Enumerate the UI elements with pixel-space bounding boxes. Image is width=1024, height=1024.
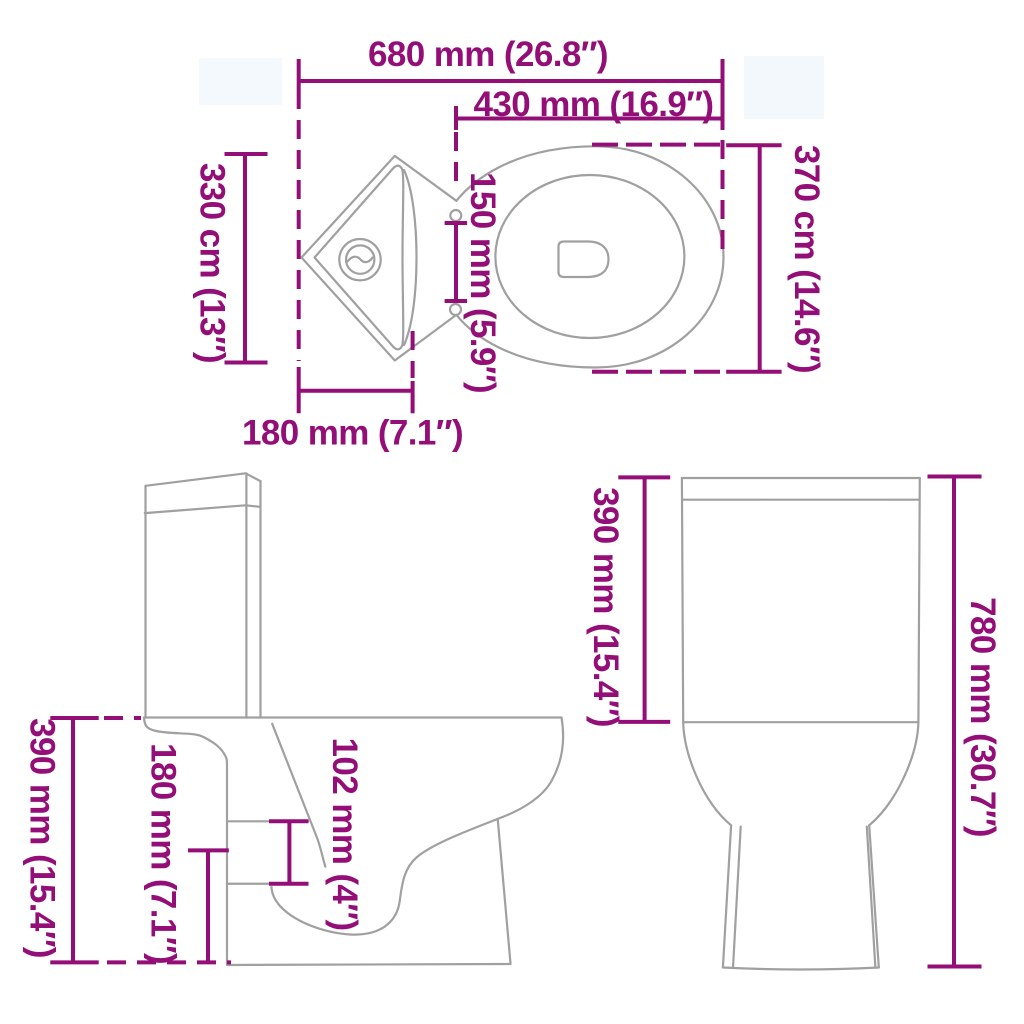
svg-text:780 mm (30.7″): 780 mm (30.7″): [963, 597, 1002, 837]
svg-text:430 mm (16.9″): 430 mm (16.9″): [474, 85, 714, 124]
svg-text:370 cm (14.6″): 370 cm (14.6″): [787, 145, 826, 373]
svg-text:180 mm (7.1″): 180 mm (7.1″): [242, 413, 463, 452]
svg-text:330 cm (13″): 330 cm (13″): [193, 163, 232, 363]
svg-text:680 mm (26.8″): 680 mm (26.8″): [368, 35, 608, 74]
svg-text:180 mm (7.1″): 180 mm (7.1″): [144, 743, 183, 964]
svg-text:390 mm (15.4″): 390 mm (15.4″): [586, 487, 625, 727]
svg-text:390 mm (15.4″): 390 mm (15.4″): [23, 718, 62, 958]
svg-text:102 mm (4″): 102 mm (4″): [325, 737, 364, 930]
svg-text:150 mm (5.9″): 150 mm (5.9″): [463, 172, 502, 393]
